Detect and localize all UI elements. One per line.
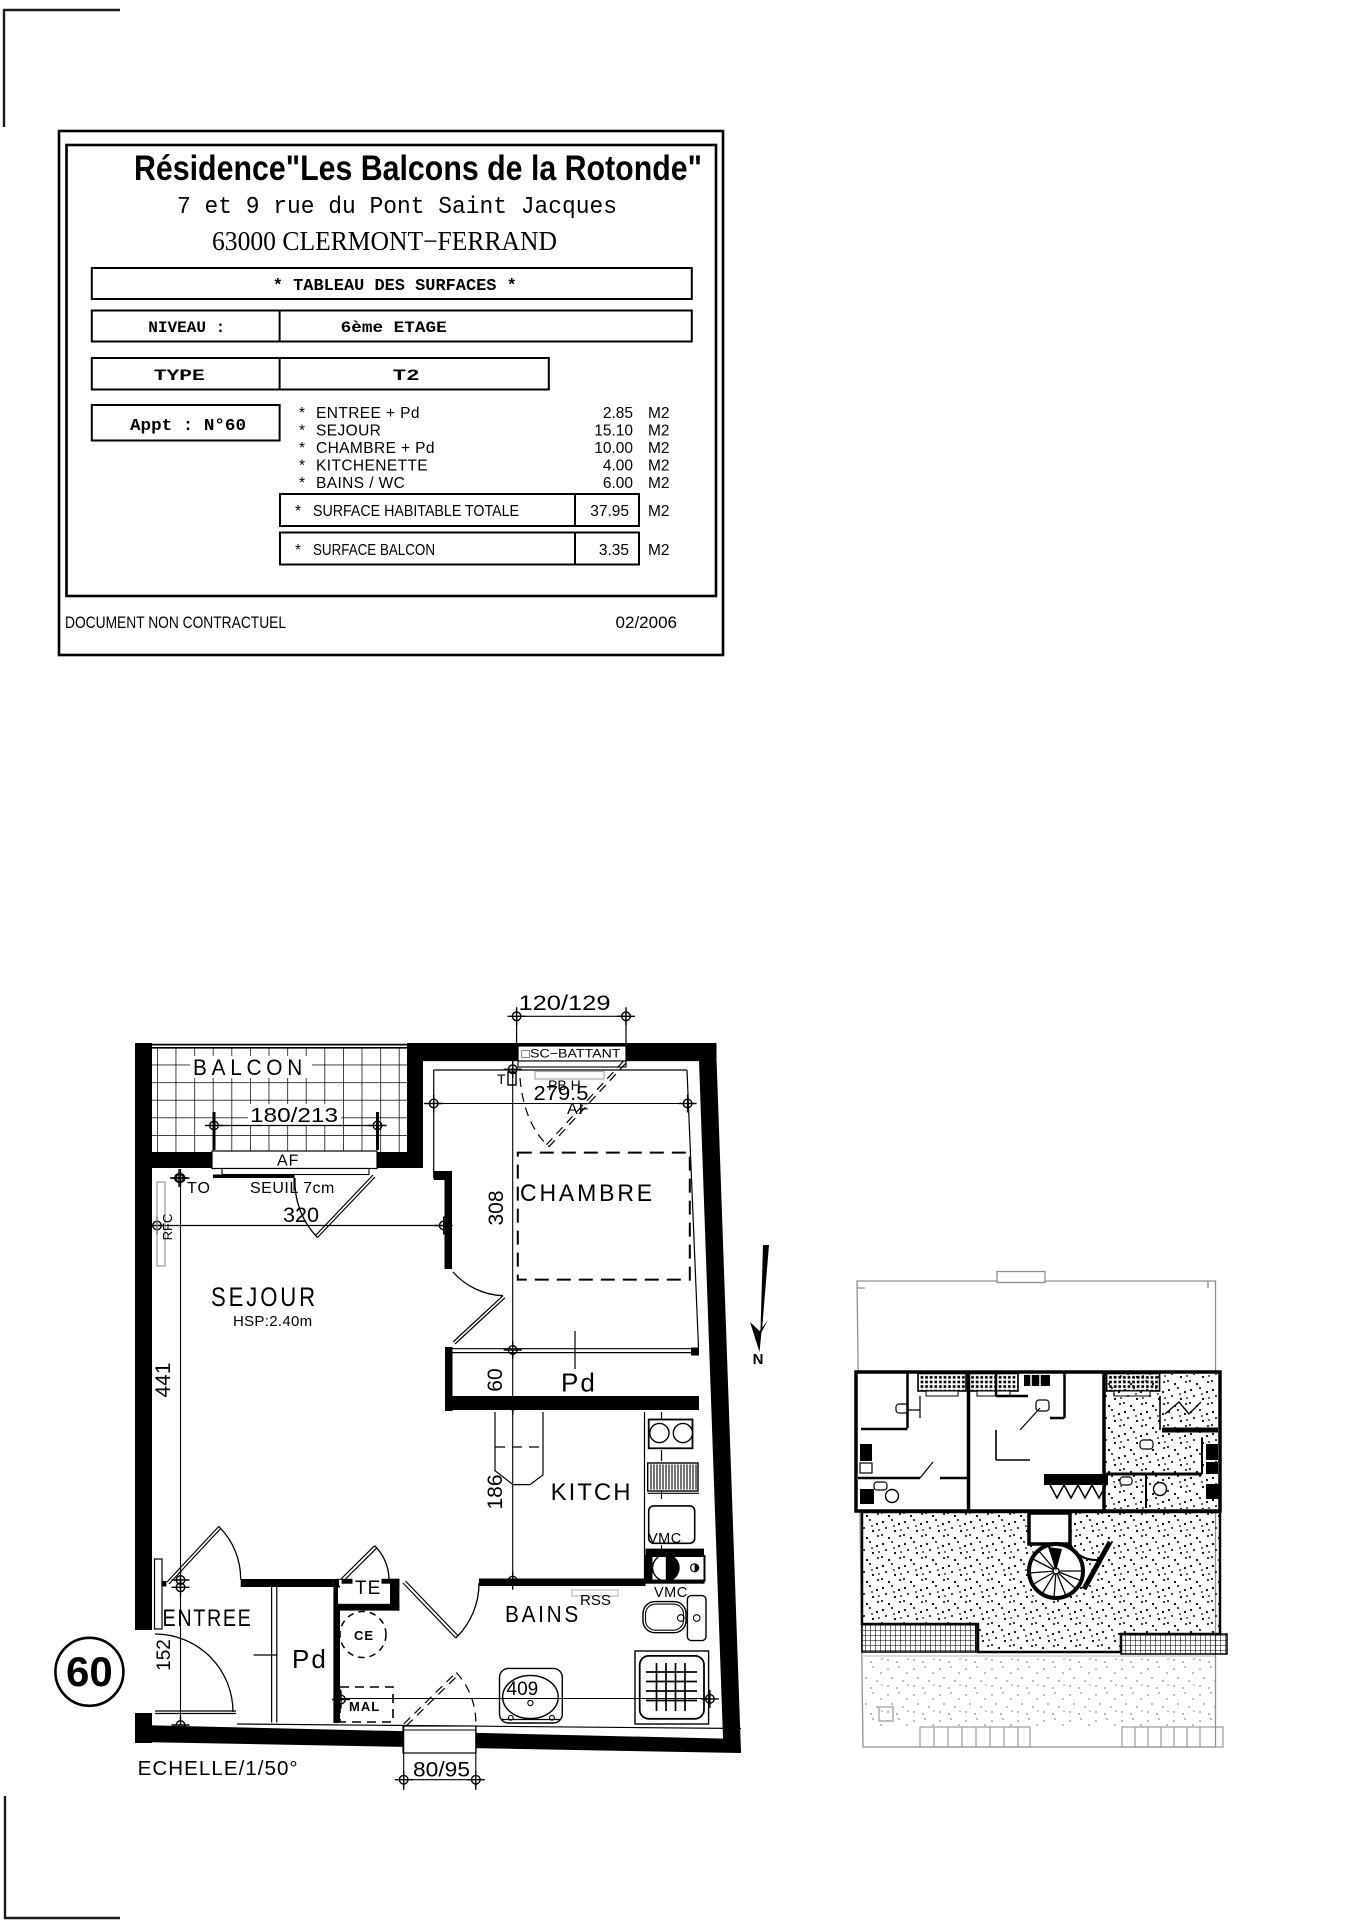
svg-text:SEJOUR: SEJOUR [211, 1282, 318, 1312]
svg-text:BAINS / WC: BAINS / WC [316, 475, 405, 492]
svg-text:BALCON: BALCON [193, 1055, 307, 1080]
svg-text:*: * [299, 423, 305, 440]
svg-text:TO: TO [187, 1180, 211, 1197]
svg-text:60: 60 [484, 1368, 507, 1391]
svg-text:NIVEAU :: NIVEAU : [148, 319, 225, 337]
svg-text:63000 CLERMONT−FERRAND: 63000 CLERMONT−FERRAND [212, 226, 557, 256]
svg-text:7 et 9 rue du Pont Saint Jacqu: 7 et 9 rue du Pont Saint Jacques [177, 194, 617, 221]
svg-text:RSS: RSS [580, 1592, 611, 1609]
svg-text:3.35: 3.35 [599, 542, 629, 559]
svg-text:CE: CE [354, 1628, 374, 1643]
svg-text:AF: AF [277, 1153, 299, 1170]
svg-text:KITCHENETTE: KITCHENETTE [316, 458, 428, 475]
svg-text:180/213: 180/213 [250, 1105, 338, 1127]
svg-text:4.00: 4.00 [603, 458, 634, 475]
svg-text:RFC: RFC [160, 1214, 175, 1241]
svg-text:□SC−BATTANT: □SC−BATTANT [522, 1047, 622, 1061]
svg-text:Pd: Pd [292, 1644, 328, 1674]
svg-text:DOCUMENT NON CONTRACTUEL: DOCUMENT NON CONTRACTUEL [65, 613, 286, 632]
svg-text:VMC: VMC [648, 1531, 682, 1547]
svg-text:VMC: VMC [654, 1585, 688, 1601]
svg-text:BAINS: BAINS [505, 1601, 581, 1627]
svg-text:Appt : N°60: Appt : N°60 [130, 417, 246, 436]
svg-text:60: 60 [66, 1648, 113, 1695]
svg-text:HSP:2.40m: HSP:2.40m [233, 1313, 312, 1330]
svg-text:*: * [299, 458, 305, 475]
svg-text:M2: M2 [648, 405, 670, 422]
svg-text:2.85: 2.85 [603, 405, 633, 422]
svg-text:ENTREE + Pd: ENTREE + Pd [316, 405, 420, 422]
svg-text:120/129: 120/129 [519, 992, 611, 1015]
svg-text:T: T [497, 1071, 506, 1087]
svg-text:37.95: 37.95 [590, 503, 629, 520]
svg-text:CHAMBRE + Pd: CHAMBRE + Pd [316, 440, 435, 457]
svg-text:ENTREE: ENTREE [163, 1605, 253, 1632]
svg-text:N: N [753, 1351, 764, 1368]
svg-text:KITCH: KITCH [551, 1479, 633, 1506]
svg-text:6ème ETAGE: 6ème ETAGE [341, 319, 447, 337]
svg-text:Résidence"Les Balcons de la Ro: Résidence"Les Balcons de la Rotonde" [134, 149, 702, 188]
svg-text:M2: M2 [648, 423, 670, 440]
svg-text:* TABLEAU DES SURFACES *: * TABLEAU DES SURFACES * [273, 277, 517, 296]
svg-text:MAL: MAL [349, 1699, 380, 1714]
svg-text:TYPE: TYPE [154, 367, 205, 385]
svg-text:409: 409 [507, 1679, 539, 1700]
svg-text:SEJOUR: SEJOUR [316, 423, 381, 440]
svg-text:441: 441 [152, 1362, 175, 1397]
svg-text:02/2006: 02/2006 [616, 613, 677, 632]
svg-text:M2: M2 [648, 458, 670, 475]
svg-text:*: * [295, 503, 301, 520]
svg-text:T2: T2 [393, 367, 420, 385]
svg-text:186: 186 [484, 1474, 507, 1509]
svg-text:M2: M2 [648, 503, 670, 520]
svg-text:*: * [299, 475, 305, 492]
svg-text:10.00: 10.00 [594, 440, 633, 457]
svg-text:152: 152 [154, 1639, 175, 1671]
svg-text:*: * [295, 542, 301, 559]
svg-text:320: 320 [283, 1204, 319, 1227]
svg-text:M2: M2 [648, 440, 670, 457]
svg-text:*: * [299, 440, 305, 457]
svg-text:SURFACE HABITABLE TOTALE: SURFACE HABITABLE TOTALE [313, 503, 519, 520]
svg-text:15.10: 15.10 [594, 423, 633, 440]
svg-text:Pd: Pd [561, 1368, 597, 1398]
svg-text:TE: TE [355, 1578, 381, 1599]
svg-text:80/95: 80/95 [413, 1759, 470, 1782]
svg-text:CHAMBRE: CHAMBRE [520, 1180, 655, 1207]
svg-text:M2: M2 [648, 475, 670, 492]
svg-text:SURFACE BALCON: SURFACE BALCON [313, 542, 435, 559]
svg-text:SEUIL 7cm: SEUIL 7cm [250, 1180, 335, 1197]
svg-text:M2: M2 [648, 542, 670, 559]
svg-text:6.00: 6.00 [603, 475, 634, 492]
svg-text:*: * [299, 405, 305, 422]
svg-text:308: 308 [485, 1190, 508, 1225]
svg-text:ECHELLE/1/50°: ECHELLE/1/50° [138, 1758, 299, 1780]
